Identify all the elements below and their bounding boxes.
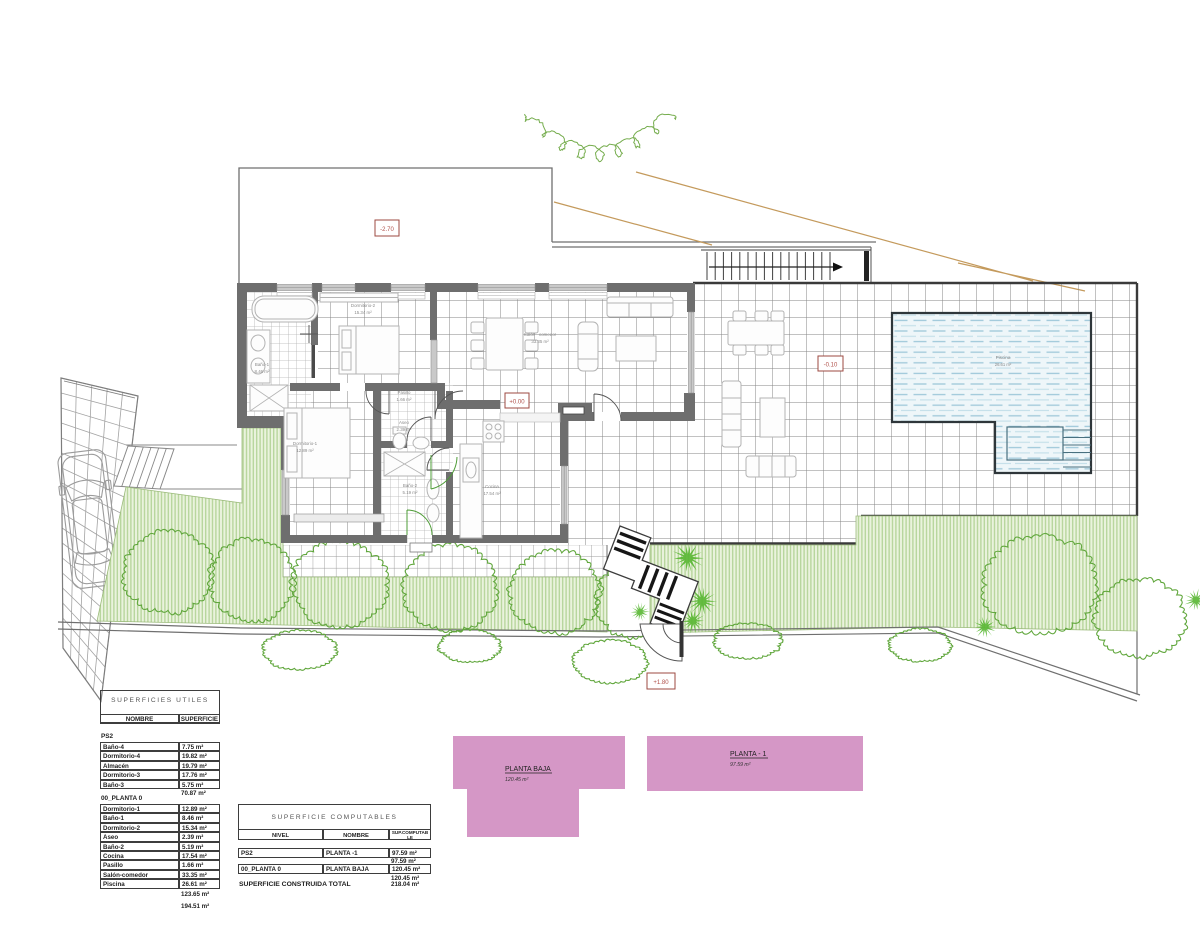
svg-text:12.89 m²: 12.89 m² (296, 448, 314, 453)
svg-text:15.34 m²: 15.34 m² (354, 310, 372, 315)
svg-text:26.61 m²: 26.61 m² (995, 362, 1012, 367)
svg-text:+0.00: +0.00 (509, 400, 525, 406)
svg-text:5.19 m²: 5.19 m² (403, 490, 418, 495)
svg-text:+1.80: +1.80 (653, 680, 669, 686)
svg-text:120.45 m²: 120.45 m² (505, 777, 529, 783)
svg-text:Piscina: Piscina (996, 355, 1011, 360)
svg-text:Dormitorio-2: Dormitorio-2 (351, 303, 376, 308)
svg-text:Baño-1: Baño-1 (255, 362, 270, 367)
svg-text:2.39 m²: 2.39 m² (397, 427, 412, 432)
svg-text:-2.70: -2.70 (380, 227, 394, 233)
svg-text:Dormitorio-1: Dormitorio-1 (293, 441, 318, 446)
svg-text:Salón - comedor: Salón - comedor (524, 332, 557, 337)
svg-text:17.54 m²: 17.54 m² (483, 491, 501, 496)
svg-text:Cocina: Cocina (485, 484, 499, 489)
svg-text:Pasillo: Pasillo (398, 390, 411, 395)
svg-text:Aseo: Aseo (399, 420, 410, 425)
svg-text:1.66 m²: 1.66 m² (397, 397, 412, 402)
svg-text:PLANTA - 1: PLANTA - 1 (730, 751, 767, 758)
svg-text:Baño-2: Baño-2 (403, 483, 418, 488)
svg-text:PLANTA BAJA: PLANTA BAJA (505, 766, 551, 773)
svg-text:97.59 m²: 97.59 m² (730, 762, 751, 768)
svg-text:-0.10: -0.10 (824, 363, 838, 369)
svg-text:8.46 m²: 8.46 m² (255, 369, 270, 374)
svg-text:33.35 m²: 33.35 m² (531, 339, 549, 344)
